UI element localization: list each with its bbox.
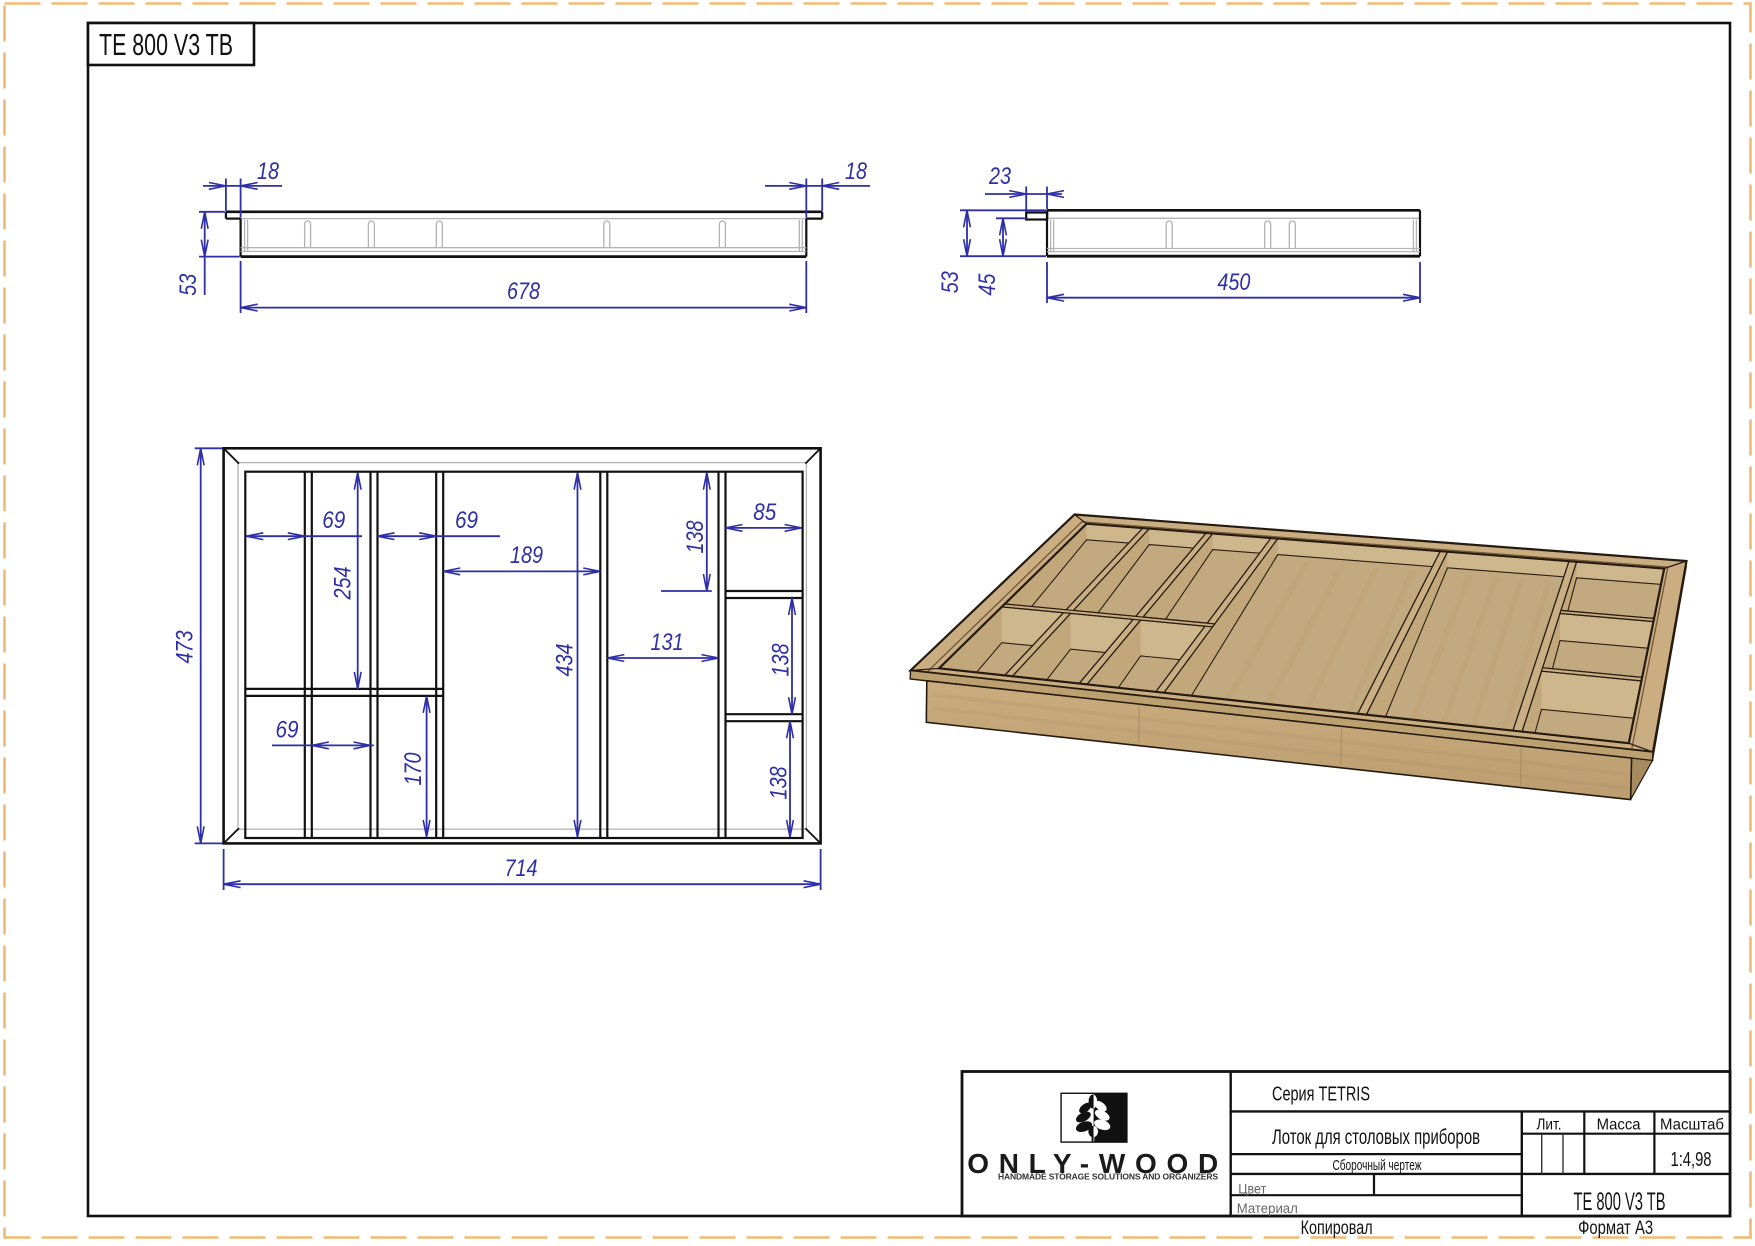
- svg-text:473: 473: [172, 630, 199, 664]
- svg-text:1:4,98: 1:4,98: [1671, 1149, 1712, 1171]
- svg-text:170: 170: [400, 752, 427, 786]
- svg-text:23: 23: [988, 163, 1011, 190]
- svg-text:678: 678: [507, 278, 541, 305]
- svg-text:Цвет: Цвет: [1238, 1182, 1266, 1197]
- svg-text:Материал: Материал: [1237, 1201, 1298, 1216]
- svg-text:138: 138: [682, 520, 709, 554]
- svg-text:45: 45: [974, 273, 1001, 296]
- svg-text:138: 138: [766, 766, 793, 800]
- svg-text:254: 254: [330, 567, 357, 601]
- svg-text:Копировал: Копировал: [1301, 1218, 1373, 1239]
- svg-text:HANDMADE STORAGE SOLUTIONS AND: HANDMADE STORAGE SOLUTIONS AND ORGANIZER…: [998, 1172, 1218, 1182]
- svg-text:69: 69: [322, 507, 345, 534]
- svg-text:Серия TETRIS: Серия TETRIS: [1272, 1084, 1370, 1106]
- svg-text:TE 800 V3 TB: TE 800 V3 TB: [99, 27, 233, 62]
- svg-text:18: 18: [845, 158, 868, 185]
- svg-text:Сборочный чертеж: Сборочный чертеж: [1333, 1157, 1422, 1174]
- svg-text:434: 434: [552, 644, 579, 677]
- svg-text:18: 18: [257, 158, 280, 185]
- svg-text:Лоток для столовых приборов: Лоток для столовых приборов: [1272, 1126, 1480, 1149]
- svg-text:Масштаб: Масштаб: [1660, 1117, 1724, 1134]
- svg-text:Масса: Масса: [1597, 1117, 1641, 1134]
- svg-text:53: 53: [175, 273, 202, 296]
- svg-text:69: 69: [455, 507, 478, 534]
- svg-text:189: 189: [510, 542, 543, 569]
- svg-text:Формат А3: Формат А3: [1578, 1218, 1653, 1239]
- svg-text:450: 450: [1217, 269, 1251, 296]
- svg-text:Лит.: Лит.: [1537, 1117, 1562, 1134]
- svg-text:138: 138: [767, 643, 794, 677]
- svg-text:69: 69: [276, 716, 299, 743]
- svg-text:53: 53: [937, 271, 964, 294]
- svg-text:714: 714: [505, 855, 538, 882]
- svg-text:131: 131: [651, 629, 684, 656]
- svg-text:85: 85: [753, 499, 777, 526]
- svg-text:TE 800 V3 TB: TE 800 V3 TB: [1574, 1188, 1666, 1216]
